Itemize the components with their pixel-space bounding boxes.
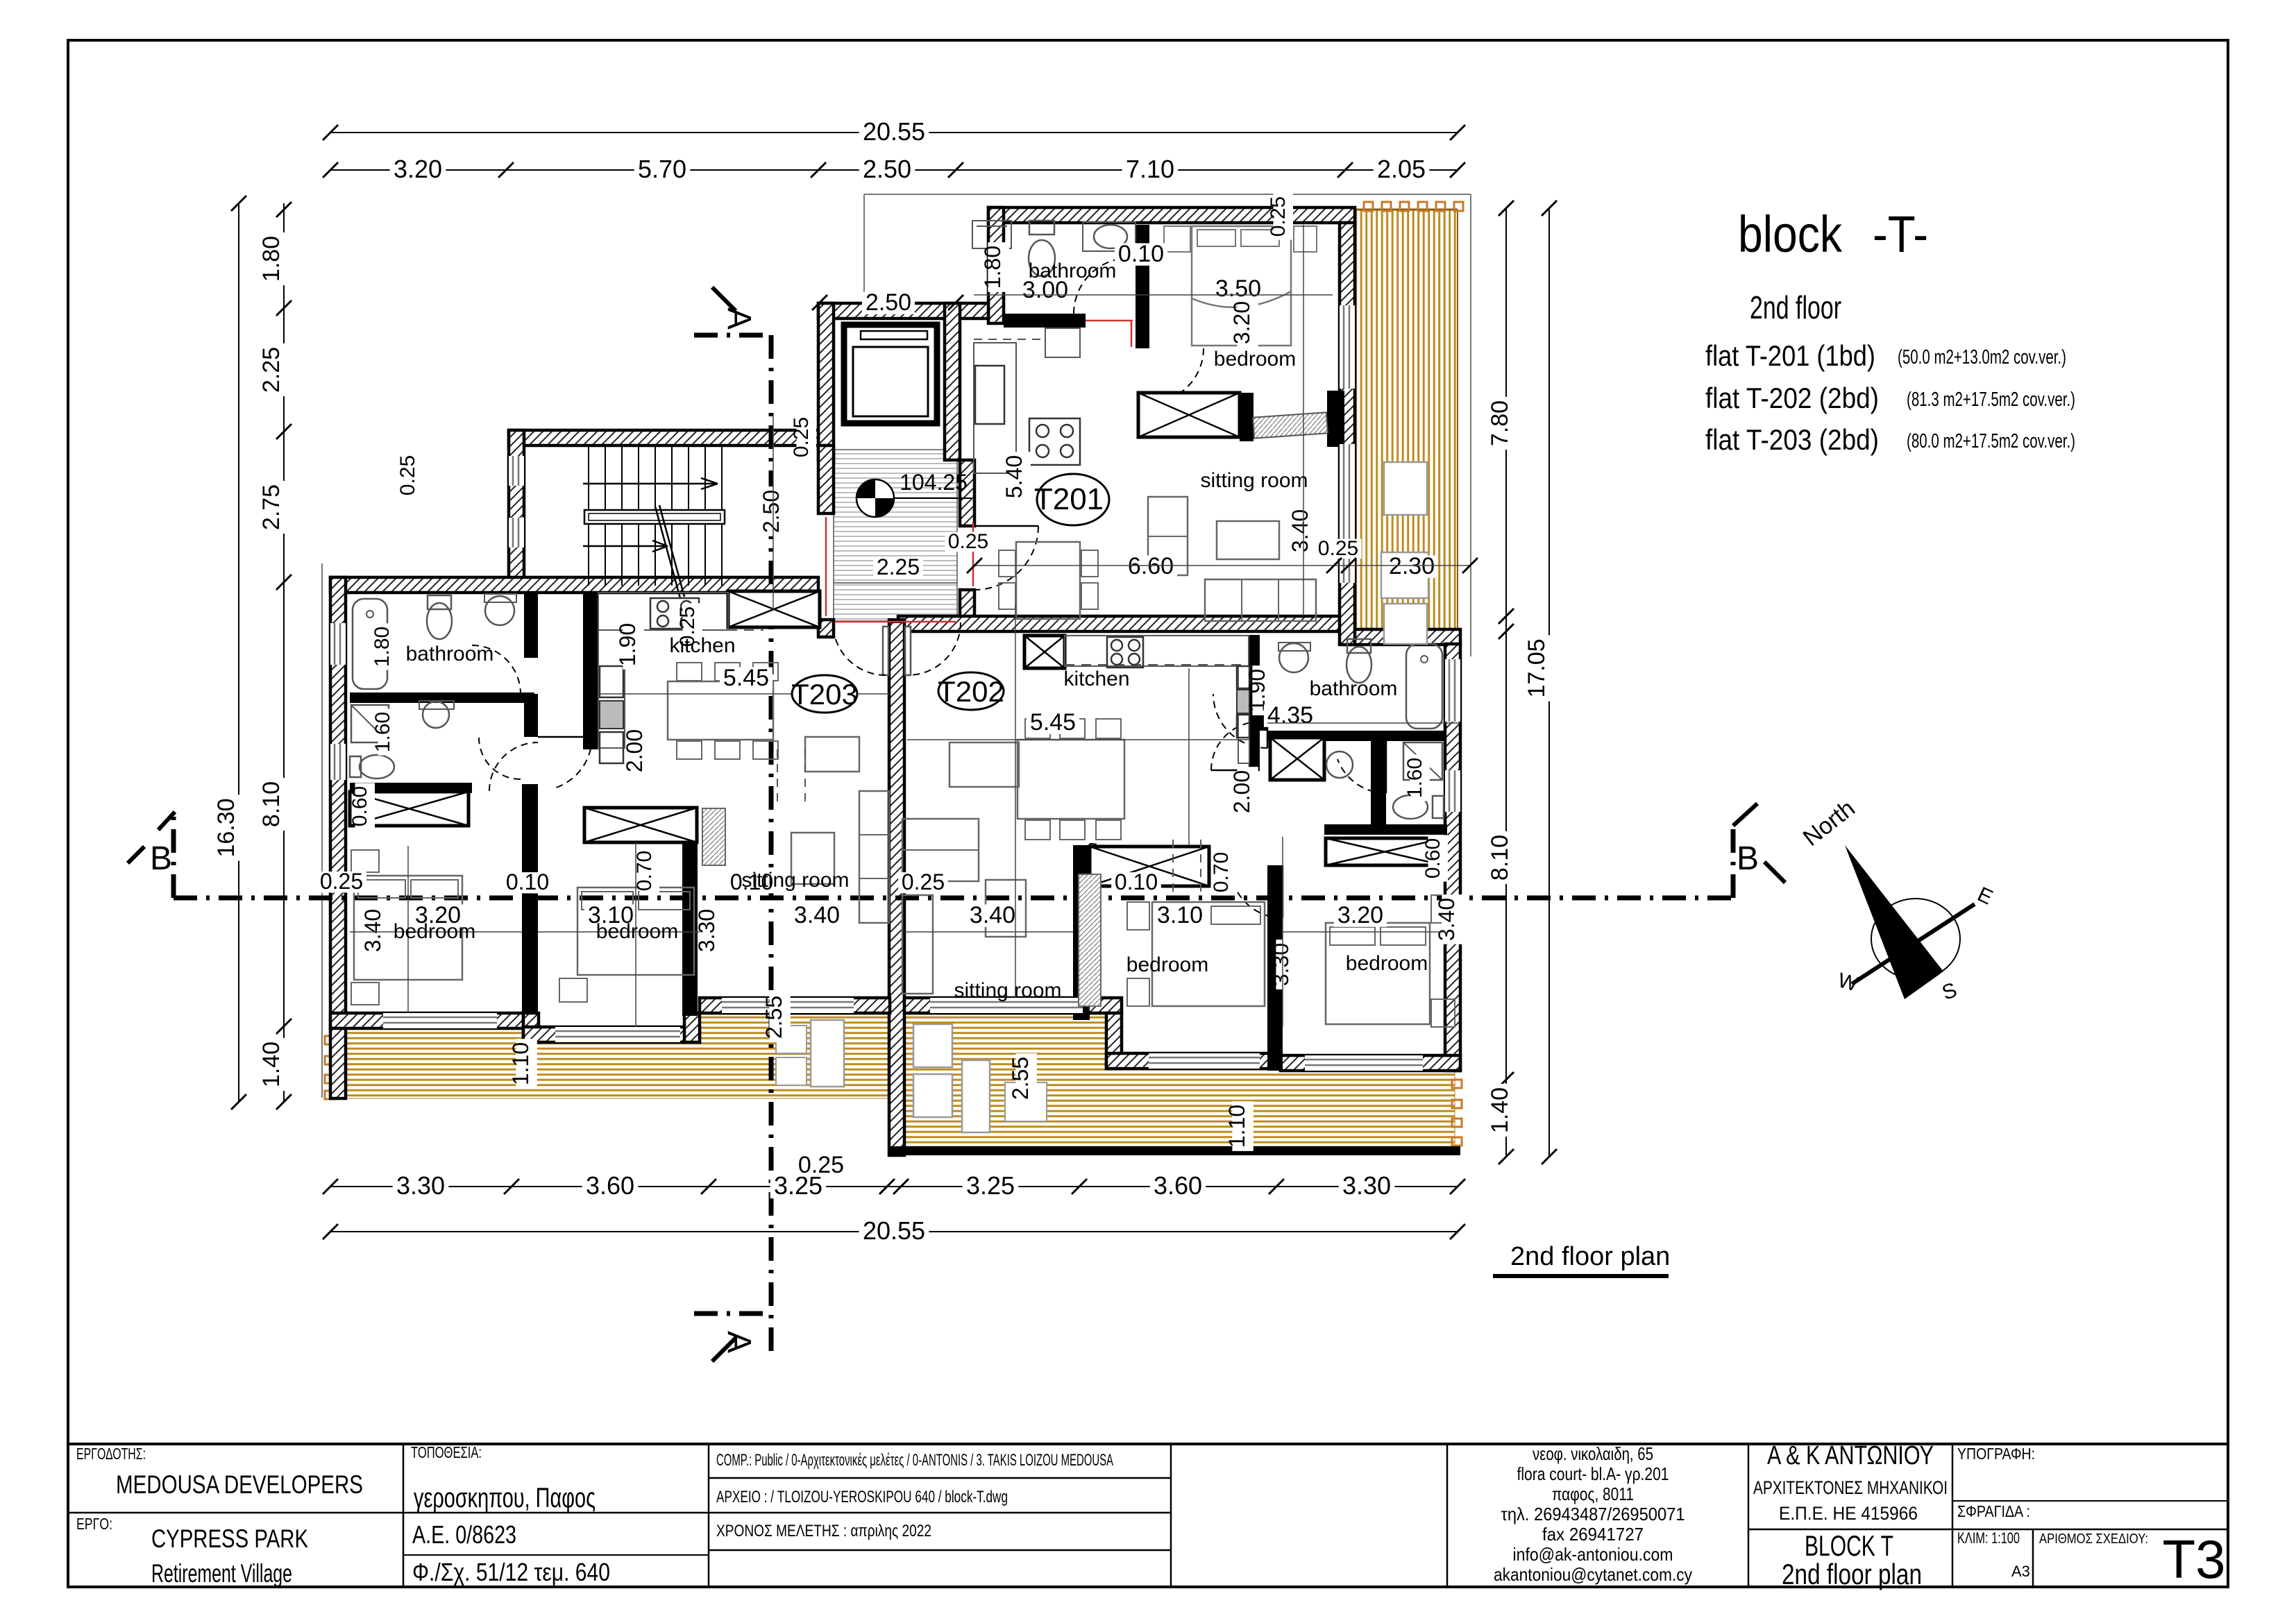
svg-text:0.25: 0.25 — [790, 417, 813, 457]
svg-text:bedroom: bedroom — [394, 920, 475, 943]
svg-text:2nd floor: 2nd floor — [1750, 289, 1841, 325]
svg-text:1.60: 1.60 — [1403, 758, 1426, 798]
svg-text:T201: T201 — [1034, 482, 1104, 516]
svg-text:0.25: 0.25 — [396, 455, 419, 495]
svg-text:flat T-202 (2bd): flat T-202 (2bd) — [1705, 382, 1879, 414]
svg-text:20.55: 20.55 — [863, 117, 925, 146]
svg-text:bedroom: bedroom — [1126, 953, 1208, 976]
svg-text:flora court- bl.A- γρ.201: flora court- bl.A- γρ.201 — [1517, 1463, 1669, 1484]
svg-text:block: block — [1738, 205, 1843, 263]
svg-text:Α.Ε. 0/8623: Α.Ε. 0/8623 — [412, 1520, 516, 1549]
svg-text:5.40: 5.40 — [1002, 455, 1027, 498]
svg-text:sitting room: sitting room — [1200, 469, 1308, 492]
svg-text:νεοφ. νικολαιδη, 65: νεοφ. νικολαιδη, 65 — [1533, 1443, 1653, 1464]
svg-text:3.40: 3.40 — [794, 902, 840, 928]
svg-text:bedroom: bedroom — [596, 920, 678, 943]
svg-text:1.90: 1.90 — [615, 623, 640, 666]
svg-text:1.80: 1.80 — [371, 627, 394, 667]
svg-text:ΑΡΙΘΜΟΣ ΣΧΕΔΙΟΥ:: ΑΡΙΘΜΟΣ ΣΧΕΔΙΟΥ: — [2039, 1531, 2148, 1547]
svg-text:flat T-203 (2bd): flat T-203 (2bd) — [1705, 423, 1879, 456]
svg-text:2.00: 2.00 — [1229, 770, 1254, 813]
svg-text:3.25: 3.25 — [966, 1171, 1015, 1200]
svg-text:fax 26941727: fax 26941727 — [1542, 1524, 1644, 1545]
svg-text:γεροσκηπου, Παφος: γεροσκηπου, Παφος — [414, 1483, 596, 1513]
svg-text:2.00: 2.00 — [622, 729, 647, 772]
svg-text:kitchen: kitchen — [1063, 668, 1129, 690]
svg-text:3.60: 3.60 — [1154, 1171, 1202, 1200]
svg-text:1.10: 1.10 — [508, 1042, 533, 1085]
svg-text:B: B — [150, 840, 172, 877]
svg-text:ΕΡΓΟ:: ΕΡΓΟ: — [76, 1515, 112, 1533]
svg-text:ΑΡΧΕΙΟ : / TLOIZOU-YEROSKIPO: ΑΡΧΕΙΟ : / TLOIZOU-YEROSKIPOU 640 / bloc… — [716, 1488, 1008, 1506]
svg-text:3.60: 3.60 — [586, 1171, 634, 1200]
svg-text:3.30: 3.30 — [1342, 1171, 1391, 1200]
svg-text:1.80: 1.80 — [258, 236, 285, 282]
svg-text:17.05: 17.05 — [1523, 638, 1550, 697]
svg-text:(81.3 m2+17.5m2 cov.ver.): (81.3 m2+17.5m2 cov.ver.) — [1907, 389, 2075, 411]
svg-text:0.70: 0.70 — [1210, 852, 1233, 892]
svg-text:CYPRESS PARK: CYPRESS PARK — [151, 1524, 308, 1553]
svg-text:16.30: 16.30 — [213, 798, 239, 857]
svg-text:Φ./Σχ. 51/12 τεμ. 640: Φ./Σχ. 51/12 τεμ. 640 — [412, 1558, 610, 1586]
svg-text:4.35: 4.35 — [1267, 702, 1313, 729]
svg-text:0.10: 0.10 — [1118, 241, 1164, 267]
svg-text:flat T-201 (1bd): flat T-201 (1bd) — [1705, 339, 1875, 372]
svg-text:Α & Κ ΑΝΤΩΝΙΟΥ: Α & Κ ΑΝΤΩΝΙΟΥ — [1767, 1441, 1934, 1470]
svg-text:A3: A3 — [2011, 1563, 2030, 1580]
svg-text:T202: T202 — [938, 675, 1004, 708]
svg-text:Retirement Village: Retirement Village — [151, 1559, 292, 1588]
svg-text:2.55: 2.55 — [761, 996, 786, 1039]
svg-text:ΧΡΟΝΟΣ ΜΕΛΕΤΗΣ : απριλης 202: ΧΡΟΝΟΣ ΜΕΛΕΤΗΣ : απριλης 2022 — [716, 1522, 931, 1540]
svg-text:παφος, 8011: παφος, 8011 — [1552, 1484, 1634, 1504]
svg-text:τηλ. 26943487/26950071: τηλ. 26943487/26950071 — [1501, 1504, 1685, 1524]
svg-text:akantoniou@cytanet.com.cy: akantoniou@cytanet.com.cy — [1494, 1564, 1692, 1585]
svg-text:0.25: 0.25 — [948, 530, 988, 553]
svg-text:0.25: 0.25 — [798, 1152, 844, 1178]
svg-text:sitting room: sitting room — [954, 979, 1061, 1002]
svg-text:3.10: 3.10 — [1157, 902, 1203, 928]
svg-text:8.10: 8.10 — [258, 781, 285, 827]
svg-text:bathroom: bathroom — [1029, 260, 1117, 282]
svg-text:ΤΟΠΟΘΕΣΙΑ:: ΤΟΠΟΘΕΣΙΑ: — [411, 1443, 482, 1461]
svg-text:2.50: 2.50 — [866, 289, 911, 316]
svg-text:2.50: 2.50 — [863, 155, 911, 183]
svg-text:104.25: 104.25 — [900, 470, 968, 495]
svg-text:2.55: 2.55 — [1008, 1057, 1033, 1100]
svg-text:0.25: 0.25 — [902, 869, 945, 894]
svg-text:3.20: 3.20 — [394, 155, 442, 183]
svg-text:2nd floor plan: 2nd floor plan — [1782, 1558, 1922, 1590]
svg-text:COMP.: Public / 0-Αρχιτεκτονικ: COMP.: Public / 0-Αρχιτεκτονικές μελέτες… — [716, 1451, 1113, 1470]
svg-text:bathroom: bathroom — [1310, 677, 1398, 700]
svg-text:MEDOUSA DEVELOPERS: MEDOUSA DEVELOPERS — [116, 1470, 363, 1499]
svg-text:2.50: 2.50 — [759, 490, 784, 533]
svg-text:BLOCK T: BLOCK T — [1805, 1529, 1893, 1562]
svg-text:3.40: 3.40 — [1434, 898, 1459, 941]
svg-text:7.80: 7.80 — [1487, 400, 1513, 446]
svg-text:5.70: 5.70 — [638, 155, 686, 183]
svg-text:3.20: 3.20 — [1229, 301, 1254, 344]
svg-text:-T-: -T- — [1873, 205, 1928, 263]
svg-text:7.10: 7.10 — [1126, 155, 1174, 183]
svg-text:1.40: 1.40 — [258, 1042, 285, 1087]
svg-text:1.10: 1.10 — [1224, 1105, 1249, 1148]
svg-text:3.40: 3.40 — [360, 909, 385, 952]
svg-text:2.25: 2.25 — [258, 347, 285, 393]
svg-text:2.75: 2.75 — [258, 484, 285, 530]
svg-text:0.25: 0.25 — [1318, 537, 1358, 560]
svg-text:info@ak-antoniou.com: info@ak-antoniou.com — [1513, 1544, 1673, 1565]
svg-text:3.40: 3.40 — [1288, 509, 1312, 552]
svg-text:ΕΡΓΟΔΟΤΗΣ:: ΕΡΓΟΔΟΤΗΣ: — [76, 1445, 146, 1463]
svg-text:(50.0 m2+13.0m2 cov.ver.): (50.0 m2+13.0m2 cov.ver.) — [1898, 346, 2066, 368]
svg-text:bedroom: bedroom — [1346, 952, 1428, 975]
svg-text:0.25: 0.25 — [1267, 196, 1290, 237]
svg-text:0.70: 0.70 — [633, 851, 656, 891]
svg-text:3.40: 3.40 — [970, 902, 1015, 928]
svg-text:2.05: 2.05 — [1377, 155, 1426, 183]
svg-text:ΥΠΟΓΡΑΦΗ:: ΥΠΟΓΡΑΦΗ: — [1957, 1445, 2035, 1463]
svg-text:1.60: 1.60 — [371, 712, 394, 752]
svg-text:ΚΛΙΜ: 1:100: ΚΛΙΜ: 1:100 — [1957, 1529, 2020, 1547]
svg-text:T203: T203 — [791, 678, 858, 711]
svg-text:kitchen: kitchen — [669, 634, 735, 657]
svg-text:5.45: 5.45 — [723, 665, 769, 691]
svg-text:(80.0 m2+17.5m2 cov.ver.): (80.0 m2+17.5m2 cov.ver.) — [1907, 430, 2075, 452]
svg-text:2.25: 2.25 — [877, 554, 920, 579]
svg-text:B: B — [1737, 840, 1759, 877]
svg-text:ΣΦΡΑΓΙΔΑ :: ΣΦΡΑΓΙΔΑ : — [1957, 1502, 2030, 1520]
svg-text:3.30: 3.30 — [1268, 943, 1293, 986]
svg-text:20.55: 20.55 — [863, 1216, 925, 1245]
svg-text:1.40: 1.40 — [1487, 1087, 1513, 1133]
svg-text:0.60: 0.60 — [348, 786, 371, 826]
svg-text:ΑΡΧΙΤΕΚΤΟΝΕΣ ΜΗΧΑΝΙΚΟΙ: ΑΡΧΙΤΕΚΤΟΝΕΣ ΜΗΧΑΝΙΚΟΙ — [1753, 1477, 1948, 1498]
svg-text:8.10: 8.10 — [1487, 835, 1513, 881]
svg-text:6.60: 6.60 — [1128, 553, 1174, 579]
svg-text:2nd floor plan: 2nd floor plan — [1510, 1242, 1670, 1271]
svg-text:1.80: 1.80 — [980, 246, 1005, 289]
svg-text:0.60: 0.60 — [1421, 838, 1444, 878]
svg-text:A: A — [720, 307, 757, 330]
svg-text:0.25: 0.25 — [320, 869, 363, 894]
svg-text:A: A — [720, 1331, 757, 1353]
svg-text:bathroom: bathroom — [406, 643, 494, 665]
svg-text:0.10: 0.10 — [1115, 869, 1158, 894]
svg-text:sitting room: sitting room — [741, 869, 849, 892]
svg-text:3.30: 3.30 — [396, 1171, 445, 1200]
svg-text:bedroom: bedroom — [1214, 348, 1296, 371]
svg-text:Ε.Π.Ε. ΗΕ 415966: Ε.Π.Ε. ΗΕ 415966 — [1779, 1503, 1918, 1524]
svg-text:5.45: 5.45 — [1030, 709, 1076, 736]
svg-text:T3: T3 — [2162, 1529, 2225, 1590]
svg-text:0.10: 0.10 — [506, 869, 549, 894]
svg-text:2.30: 2.30 — [1389, 553, 1435, 579]
svg-text:3.20: 3.20 — [1337, 902, 1383, 928]
svg-text:3.30: 3.30 — [694, 909, 719, 952]
